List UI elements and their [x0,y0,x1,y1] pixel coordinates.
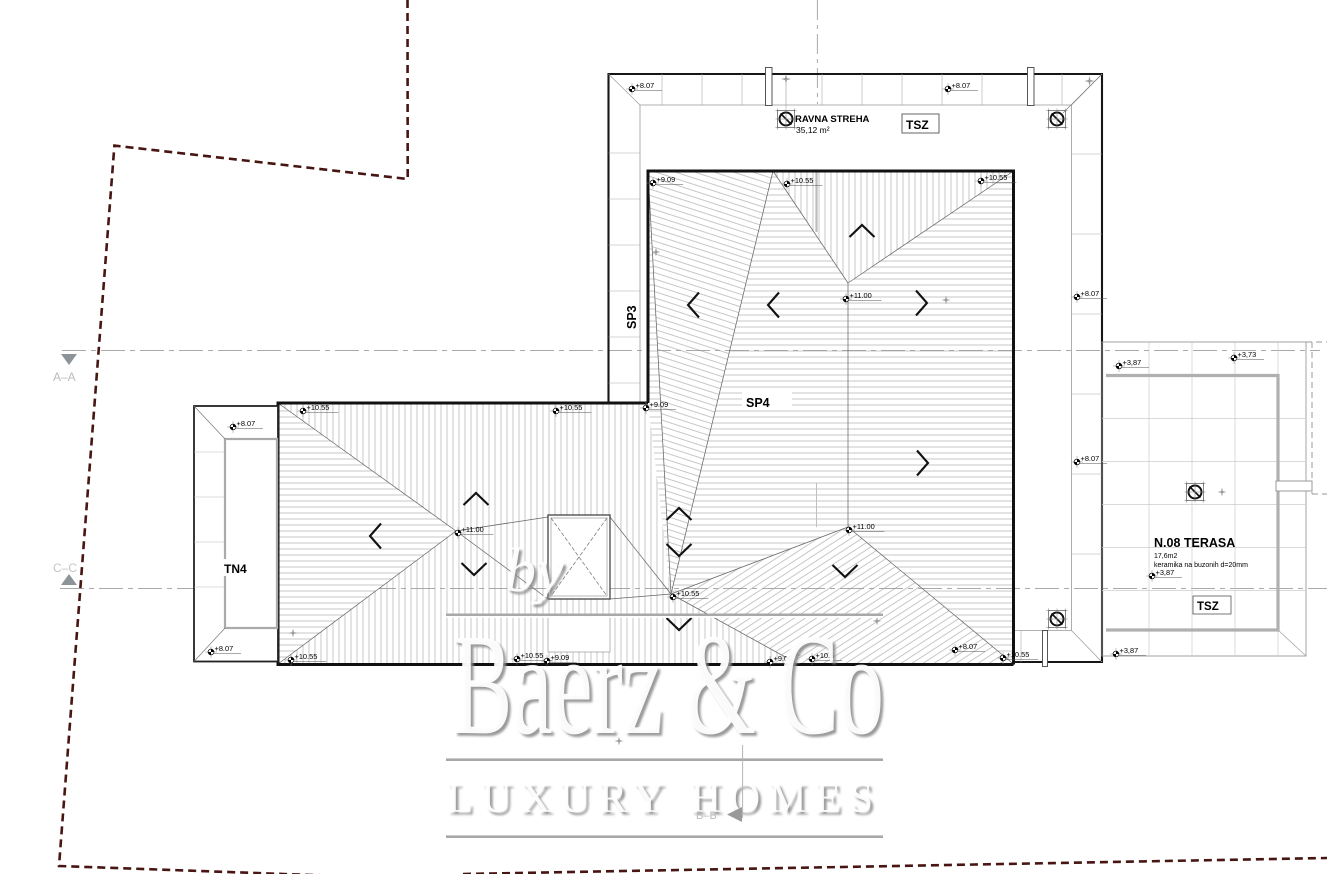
svg-text:by: by [505,537,564,605]
svg-text:RAVNA STREHA: RAVNA STREHA [795,114,870,125]
svg-text:+10.55: +10.55 [791,176,814,185]
svg-text:+10.55: +10.55 [295,652,318,661]
svg-text:+8.07: +8.07 [1081,454,1100,463]
svg-text:+3,87: +3,87 [1120,646,1139,655]
svg-text:+10.55: +10.55 [307,403,330,412]
svg-text:+8.07: +8.07 [636,81,655,90]
svg-text:35,12 m²: 35,12 m² [796,125,830,135]
svg-text:SP4: SP4 [746,396,770,410]
svg-text:+11.00: +11.00 [850,291,872,300]
svg-text:N.08 TERASA: N.08 TERASA [1154,536,1235,550]
svg-text:+3,87: +3,87 [1156,568,1175,577]
svg-text:TSZ: TSZ [1197,601,1219,613]
svg-text:+3,73: +3,73 [1238,350,1257,359]
svg-text:+10.55: +10.55 [677,589,700,598]
svg-text:A–A: A–A [53,370,76,384]
svg-text:+11.00: +11.00 [462,525,484,534]
svg-text:+8.07: +8.07 [959,642,978,651]
svg-text:C–C: C–C [53,561,77,575]
svg-text:+9.09: +9.09 [657,175,676,184]
svg-text:+8.07: +8.07 [215,644,234,653]
svg-text:SP3: SP3 [625,305,639,329]
svg-text:TN4: TN4 [224,562,247,576]
svg-text:LUXURY HOMES: LUXURY HOMES [447,776,885,822]
svg-text:17,6m2: 17,6m2 [1154,553,1177,560]
svg-text:TSZ: TSZ [906,118,929,132]
svg-text:+10.55: +10.55 [560,403,583,412]
svg-text:+9.09: +9.09 [650,400,669,409]
svg-text:Baerz & Co: Baerz & Co [452,605,884,765]
svg-text:+10.55: +10.55 [985,173,1008,182]
svg-text:+8.07: +8.07 [237,419,256,428]
svg-text:B–B: B–B [696,810,717,822]
svg-text:+8.07: +8.07 [952,81,971,90]
svg-text:+11.00: +11.00 [853,522,875,531]
svg-text:+3,87: +3,87 [1123,358,1142,367]
svg-text:+10.55: +10.55 [1007,650,1030,659]
svg-text:+8.07: +8.07 [1081,289,1100,298]
